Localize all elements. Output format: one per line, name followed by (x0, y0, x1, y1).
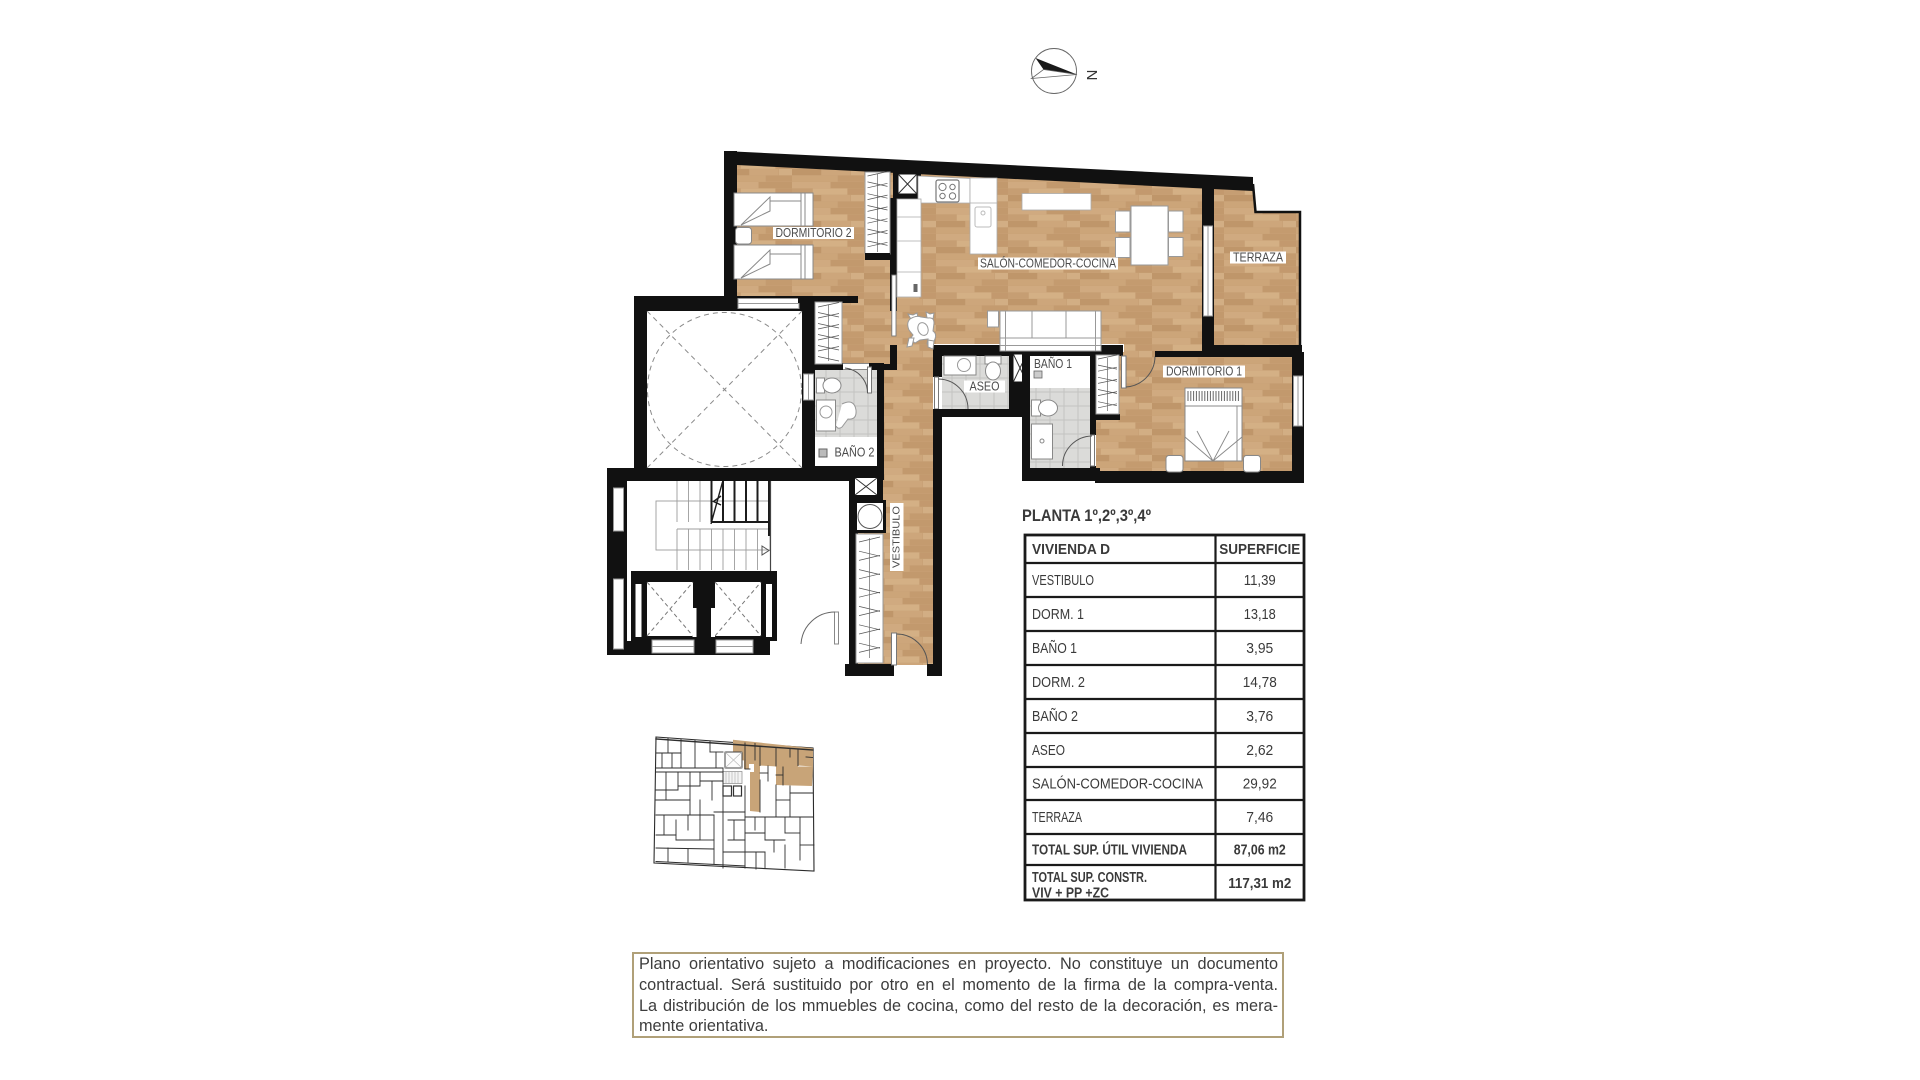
svg-text:N: N (1083, 70, 1100, 81)
svg-text:SALÓN-COMEDOR-COCINA: SALÓN-COMEDOR-COCINA (980, 256, 1117, 271)
svg-text:SALÓN-COMEDOR-COCINA: SALÓN-COMEDOR-COCINA (1032, 776, 1203, 793)
svg-text:DORM. 1: DORM. 1 (1032, 607, 1084, 623)
svg-text:DORMITORIO 2: DORMITORIO 2 (776, 226, 852, 240)
svg-text:VIV + PP +ZC: VIV + PP +ZC (1032, 885, 1109, 902)
svg-text:ASEO: ASEO (1032, 743, 1065, 759)
svg-text:TERRAZA: TERRAZA (1032, 810, 1082, 826)
svg-text:3,76: 3,76 (1246, 709, 1273, 725)
svg-text:VESTIBULO: VESTIBULO (891, 506, 903, 568)
svg-text:87,06 m2: 87,06 m2 (1234, 842, 1286, 859)
svg-text:2,62: 2,62 (1246, 743, 1273, 759)
svg-text:DORM. 2: DORM. 2 (1032, 675, 1085, 691)
svg-text:DORMITORIO 1: DORMITORIO 1 (1166, 365, 1242, 379)
svg-text:13,18: 13,18 (1244, 607, 1276, 623)
svg-text:BAÑO 1: BAÑO 1 (1034, 357, 1072, 371)
svg-text:29,92: 29,92 (1243, 777, 1277, 793)
svg-text:BAÑO 2: BAÑO 2 (835, 446, 875, 460)
svg-text:TOTAL SUP. CONSTR.: TOTAL SUP. CONSTR. (1032, 869, 1147, 886)
svg-text:SUPERFICIE: SUPERFICIE (1219, 541, 1300, 558)
svg-text:BAÑO 2: BAÑO 2 (1032, 708, 1078, 725)
svg-text:7,46: 7,46 (1246, 810, 1273, 826)
svg-text:TERRAZA: TERRAZA (1233, 251, 1284, 265)
svg-text:ASEO: ASEO (970, 380, 1000, 394)
svg-text:14,78: 14,78 (1243, 675, 1277, 691)
svg-text:VESTIBULO: VESTIBULO (1032, 573, 1094, 589)
svg-text:PLANTA 1º,2º,3º,4º: PLANTA 1º,2º,3º,4º (1022, 507, 1151, 525)
svg-text:3,95: 3,95 (1246, 641, 1273, 657)
svg-text:VIVIENDA D: VIVIENDA D (1032, 541, 1110, 558)
svg-text:BAÑO 1: BAÑO 1 (1032, 640, 1077, 657)
svg-text:117,31 m2: 117,31 m2 (1228, 875, 1291, 892)
svg-text:TOTAL SUP. ÚTIL VIVIENDA: TOTAL SUP. ÚTIL VIVIENDA (1032, 841, 1187, 859)
svg-text:11,39: 11,39 (1244, 573, 1276, 589)
